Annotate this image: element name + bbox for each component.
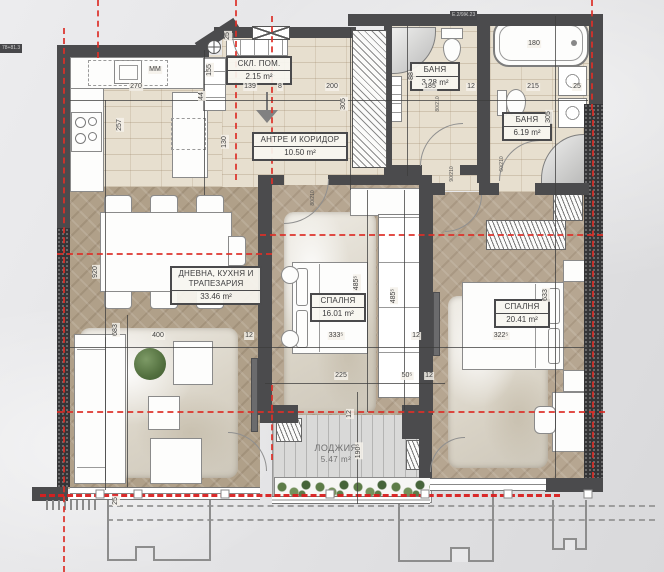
dimension-line <box>105 100 106 490</box>
dining-chair <box>104 291 132 309</box>
room-name: СПАЛНЯ <box>312 295 364 308</box>
wall-bath-small-bottom <box>460 165 478 175</box>
bedside-pouf <box>281 266 299 284</box>
sofa <box>74 334 126 484</box>
room-area: 5.47 m² <box>300 454 372 465</box>
room-area: 10.50 m² <box>254 147 346 159</box>
room-label-living: ДНЕВНА, КУХНЯ И ТРАПЕЗАРИЯ 33.46 m² <box>170 266 262 305</box>
axis-line <box>63 28 65 572</box>
potted-plant <box>134 348 166 380</box>
pillow <box>548 328 560 364</box>
tv-living <box>251 358 258 432</box>
axis-line <box>592 110 594 478</box>
desk <box>552 392 586 452</box>
wall-bed-right-top <box>479 183 499 195</box>
room-name: АНТРЕ И КОРИДОР <box>254 134 346 147</box>
loggia-door-living-swing <box>228 432 267 471</box>
bathroom-sink <box>558 98 587 128</box>
axis-line <box>235 0 237 180</box>
upper-cabinet-dashed <box>171 118 206 150</box>
outline-notch-left <box>135 546 155 561</box>
wall-bath-divider <box>477 14 490 183</box>
wardrobe <box>378 214 424 398</box>
wall-bath-small-bottom <box>384 165 422 175</box>
room-label-storage: СКЛ. ПОМ. 2.15 m² <box>226 56 292 85</box>
entrance-arrow-icon <box>256 110 278 123</box>
dimension-line <box>70 347 588 348</box>
room-label-bedroom-mid: СПАЛНЯ 16.01 m² <box>310 293 366 322</box>
dimension-line <box>555 16 556 478</box>
dimension-line <box>70 100 588 101</box>
axis-line <box>260 234 603 236</box>
room-name: БАНЯ <box>504 114 550 127</box>
axis-line <box>97 0 99 58</box>
dining-chair <box>228 236 246 266</box>
room-label-hallway: АНТРЕ И КОРИДОР 10.50 m² <box>252 132 348 161</box>
room-area: 20.41 m² <box>496 314 548 326</box>
stove-burner <box>88 132 97 141</box>
room-area: 2.15 m² <box>228 71 290 83</box>
axis-line <box>271 385 273 460</box>
wall-bedrooms-divider <box>419 185 433 415</box>
outline-notch-center <box>450 547 470 562</box>
dining-chair <box>104 195 132 213</box>
hall-closet <box>203 57 226 111</box>
room-area: 16.01 m² <box>312 308 364 320</box>
room-name: СПАЛНЯ <box>496 301 548 314</box>
room-name: ДНЕВНА, КУХНЯ И ТРАПЕЗАРИЯ <box>172 268 260 291</box>
dining-chair <box>150 195 178 213</box>
wall-bed-right-top <box>419 183 445 195</box>
wall-top-baths <box>348 14 603 26</box>
dimension-line <box>127 315 128 487</box>
neighbor-planter-hatch <box>46 500 98 510</box>
fan-icon <box>207 40 221 54</box>
dimension-line <box>404 190 405 410</box>
upper-cabinet-dashed <box>88 60 168 86</box>
dimension-line <box>367 190 368 412</box>
ottoman <box>150 438 202 484</box>
stove-burner <box>75 117 86 128</box>
axis-line <box>57 411 605 413</box>
room-area: 33.46 m² <box>172 291 260 303</box>
room-label-bath-large: БАНЯ 6.19 m² <box>502 112 552 141</box>
room-label-bath-small: БАНЯ 3.28 m² <box>410 62 460 91</box>
wall-corner-bottom-right <box>545 478 603 492</box>
room-area: 6.19 m² <box>504 127 550 139</box>
wall-tag: 78+81.3 <box>0 44 22 53</box>
room-name: БАНЯ <box>412 64 458 77</box>
dimension-line <box>204 50 205 195</box>
room-area: 3.28 m² <box>412 77 458 89</box>
bathroom-sink <box>558 66 587 96</box>
axis-line <box>57 253 272 255</box>
axis-line <box>591 0 593 110</box>
wall-hall-bed-mid <box>328 175 432 185</box>
entrance-arrow-stem <box>266 92 268 110</box>
bedside-pouf <box>281 330 299 348</box>
coffee-table <box>148 396 180 430</box>
outline-notch-right <box>563 538 577 550</box>
ventilation-shaft <box>352 30 387 168</box>
room-label-bedroom-right: СПАЛНЯ 20.41 m² <box>494 299 550 328</box>
floor-plan-canvas: СКЛ. ПОМ. 2.15 m² АНТРЕ И КОРИДОР 10.50 … <box>0 0 664 572</box>
cabinet <box>350 188 420 216</box>
room-label-loggia: ЛОДЖИЯ 5.47 m² <box>300 443 372 465</box>
bathtub <box>493 19 589 67</box>
lower-floor-outline-left <box>107 497 211 561</box>
dimension-line <box>407 26 408 176</box>
stove-burner <box>75 133 86 144</box>
dimension-line <box>265 383 445 384</box>
room-name: ЛОДЖИЯ <box>300 443 372 454</box>
stove-burner <box>88 117 97 126</box>
axis-line-facade <box>40 494 560 497</box>
wall-bed-right-top <box>535 183 589 195</box>
loggia-glazing <box>272 496 430 504</box>
window-bedroom-right <box>430 478 546 491</box>
wall-top-kitchen <box>57 45 209 57</box>
room-name: СКЛ. ПОМ. <box>228 58 290 71</box>
dimension-line <box>350 28 351 190</box>
loggia-pier-left <box>260 405 298 423</box>
stove <box>71 112 102 152</box>
dining-chair <box>196 195 224 213</box>
